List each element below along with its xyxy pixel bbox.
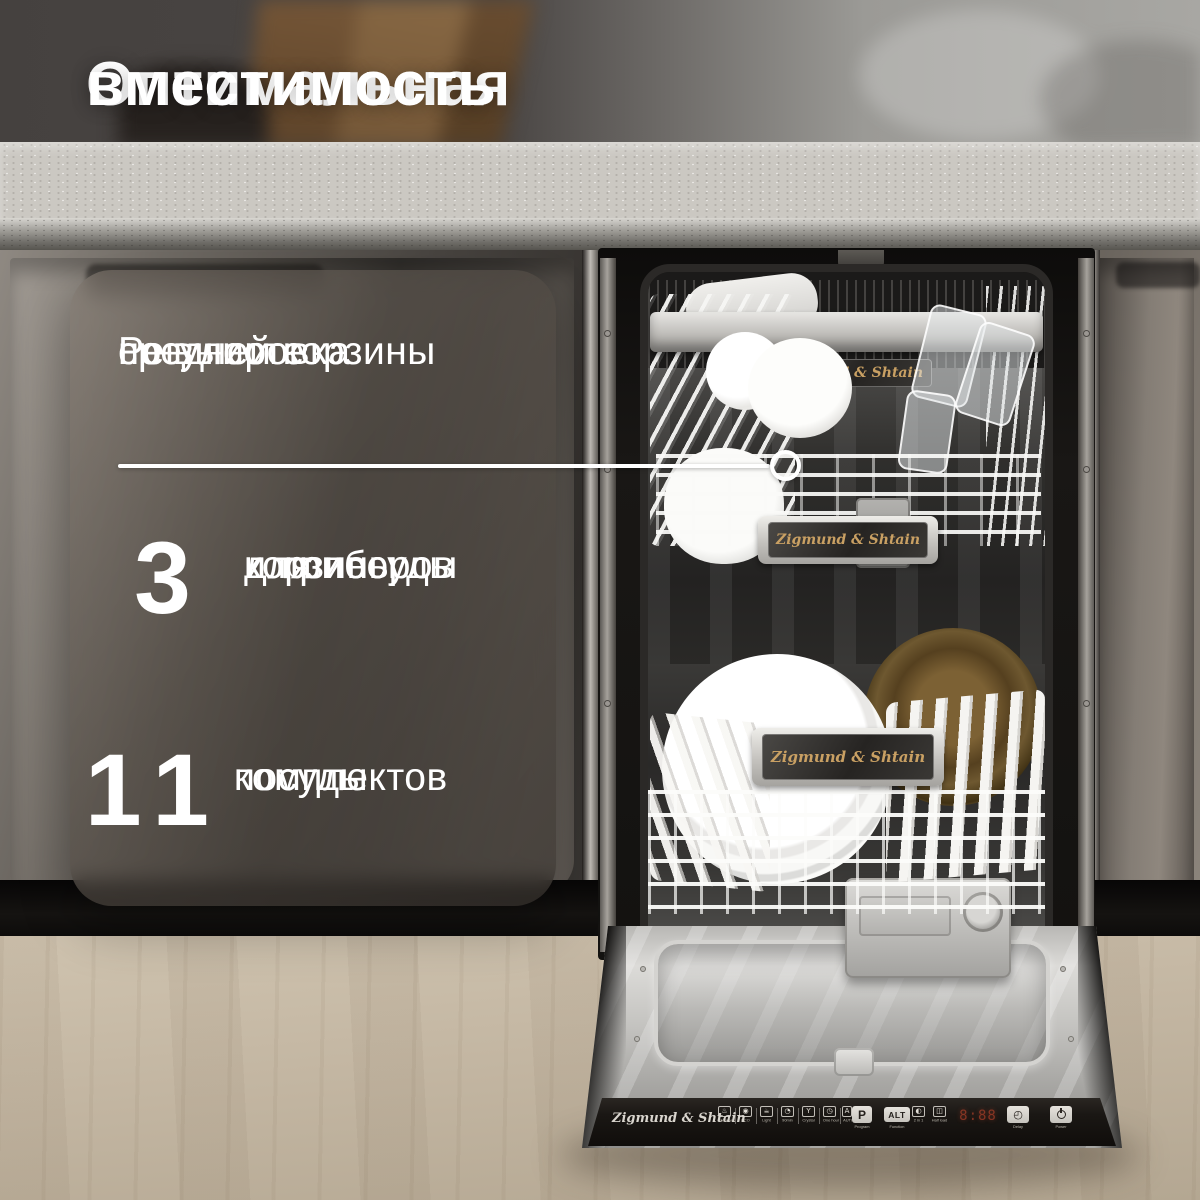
key-separator	[840, 1108, 841, 1124]
program-key-intensive: ♨ Intensive	[716, 1106, 733, 1124]
stat-label-line: посуды	[234, 754, 368, 802]
p-key-label: Program	[850, 1125, 875, 1130]
door-latch	[834, 1048, 874, 1076]
screw-icon	[1083, 466, 1090, 473]
program-key-label: Intensive	[718, 1119, 731, 1123]
screw-icon	[1083, 700, 1090, 707]
control-panel: Zigmund & Shtain ♨ Intensive ◉ ECO ☕ Lig…	[588, 1098, 1116, 1146]
program-key-crystal: Y Crystal	[800, 1106, 817, 1124]
key-separator	[777, 1108, 778, 1124]
key-separator	[798, 1108, 799, 1124]
door-screw-icon	[1060, 966, 1066, 972]
program-key-label: 90min	[781, 1119, 794, 1123]
crystal-program-icon: Y	[806, 1108, 810, 1115]
alt-key-label: Function	[885, 1125, 910, 1130]
program-key-label: Light	[760, 1119, 773, 1123]
callout-ring	[770, 450, 801, 481]
brand-logo-text: Zigmund & Shtain	[776, 532, 920, 548]
two-in-one-label: 2 in 1	[912, 1119, 925, 1123]
card-heading-line: по высоте	[118, 328, 305, 376]
screw-icon	[604, 700, 611, 707]
brand-plaque-glass: Zigmund & Shtain	[762, 734, 934, 780]
right-cabinet-handle	[1116, 262, 1200, 288]
program-key-one-hour: ◷ One hour	[821, 1106, 838, 1124]
info-card: Регулировка средней корзины по высоте 3 …	[70, 270, 556, 906]
screw-icon	[1083, 330, 1090, 337]
key-separator	[735, 1108, 736, 1124]
dishwasher-interior: Zigmund & Shtain Zigmund & Shtain Zigmun	[640, 264, 1053, 936]
half-load-label: Half load	[931, 1119, 947, 1123]
segment-display: 8:88	[956, 1108, 1000, 1128]
power-icon	[1057, 1110, 1066, 1119]
90min-program-icon: ◔	[784, 1108, 790, 1115]
screw-icon	[604, 330, 611, 337]
delay-key-label: Delay	[1006, 1125, 1029, 1130]
auto-program-icon: A	[845, 1108, 850, 1115]
dishwasher-side-post	[600, 258, 616, 952]
countertop	[0, 142, 1200, 218]
two-in-one-key: ◐ 2 in 1	[910, 1106, 927, 1124]
intensive-program-icon: ♨	[721, 1108, 727, 1115]
kitchen-scene: Zigmund & Shtain Zigmund & Shtain Zigmun	[0, 0, 1200, 1200]
delay-clock-icon: ◴	[1013, 1109, 1023, 1120]
one-hour-program-icon: ◷	[826, 1108, 832, 1115]
dishwasher-side-post	[1078, 258, 1094, 952]
door-screw-icon	[1068, 1036, 1074, 1042]
key-separator	[756, 1108, 757, 1124]
delay-key: ◴	[1007, 1106, 1029, 1123]
white-bowl	[748, 338, 852, 438]
brand-plaque-middle: Zigmund & Shtain	[758, 516, 938, 564]
program-key-90min: ◔ 90min	[779, 1106, 796, 1124]
power-key-label: Power	[1049, 1125, 1072, 1130]
page-title-line: вместимость	[86, 50, 496, 121]
alt-function-key: ALT	[884, 1107, 910, 1122]
door-screw-icon	[640, 966, 646, 972]
brand-plaque-glass: Zigmund & Shtain	[768, 522, 928, 558]
half-load-icon: ◫	[936, 1108, 943, 1115]
brand-plaque-lower: Zigmund & Shtain	[752, 728, 944, 786]
key-separator	[819, 1108, 820, 1124]
two-in-one-icon: ◐	[915, 1108, 921, 1115]
eco-program-icon: ◉	[742, 1108, 748, 1115]
callout-line	[118, 464, 770, 468]
power-key	[1050, 1106, 1072, 1123]
program-key-label: AUTO	[843, 1119, 851, 1123]
half-load-key: ◫ Half load	[929, 1106, 950, 1124]
door-screw-icon	[634, 1036, 640, 1042]
stat-baskets-value: 3	[95, 532, 230, 626]
light-program-icon: ☕	[763, 1108, 769, 1115]
brand-logo-text: Zigmund & Shtain	[771, 748, 925, 766]
lower-basket-wires	[648, 790, 1045, 914]
program-key-auto: A AUTO	[842, 1106, 852, 1124]
program-select-key: P	[852, 1106, 872, 1123]
program-key-label: ECO	[739, 1119, 752, 1123]
program-key-label: One hour	[823, 1119, 836, 1123]
stat-place-settings-value: 11	[85, 744, 220, 838]
stat-label-line: и приборов	[244, 542, 454, 590]
stat-place-settings: 11 комплектов посуды	[95, 744, 535, 838]
program-key-label: Crystal	[802, 1119, 815, 1123]
countertop-front-edge	[0, 218, 1200, 252]
right-cabinet-door	[1098, 258, 1194, 882]
program-key-eco: ◉ ECO	[737, 1106, 754, 1124]
program-key-light: ☕ Light	[758, 1106, 775, 1124]
stat-baskets: 3 корзины для посуды и приборов	[95, 532, 535, 626]
